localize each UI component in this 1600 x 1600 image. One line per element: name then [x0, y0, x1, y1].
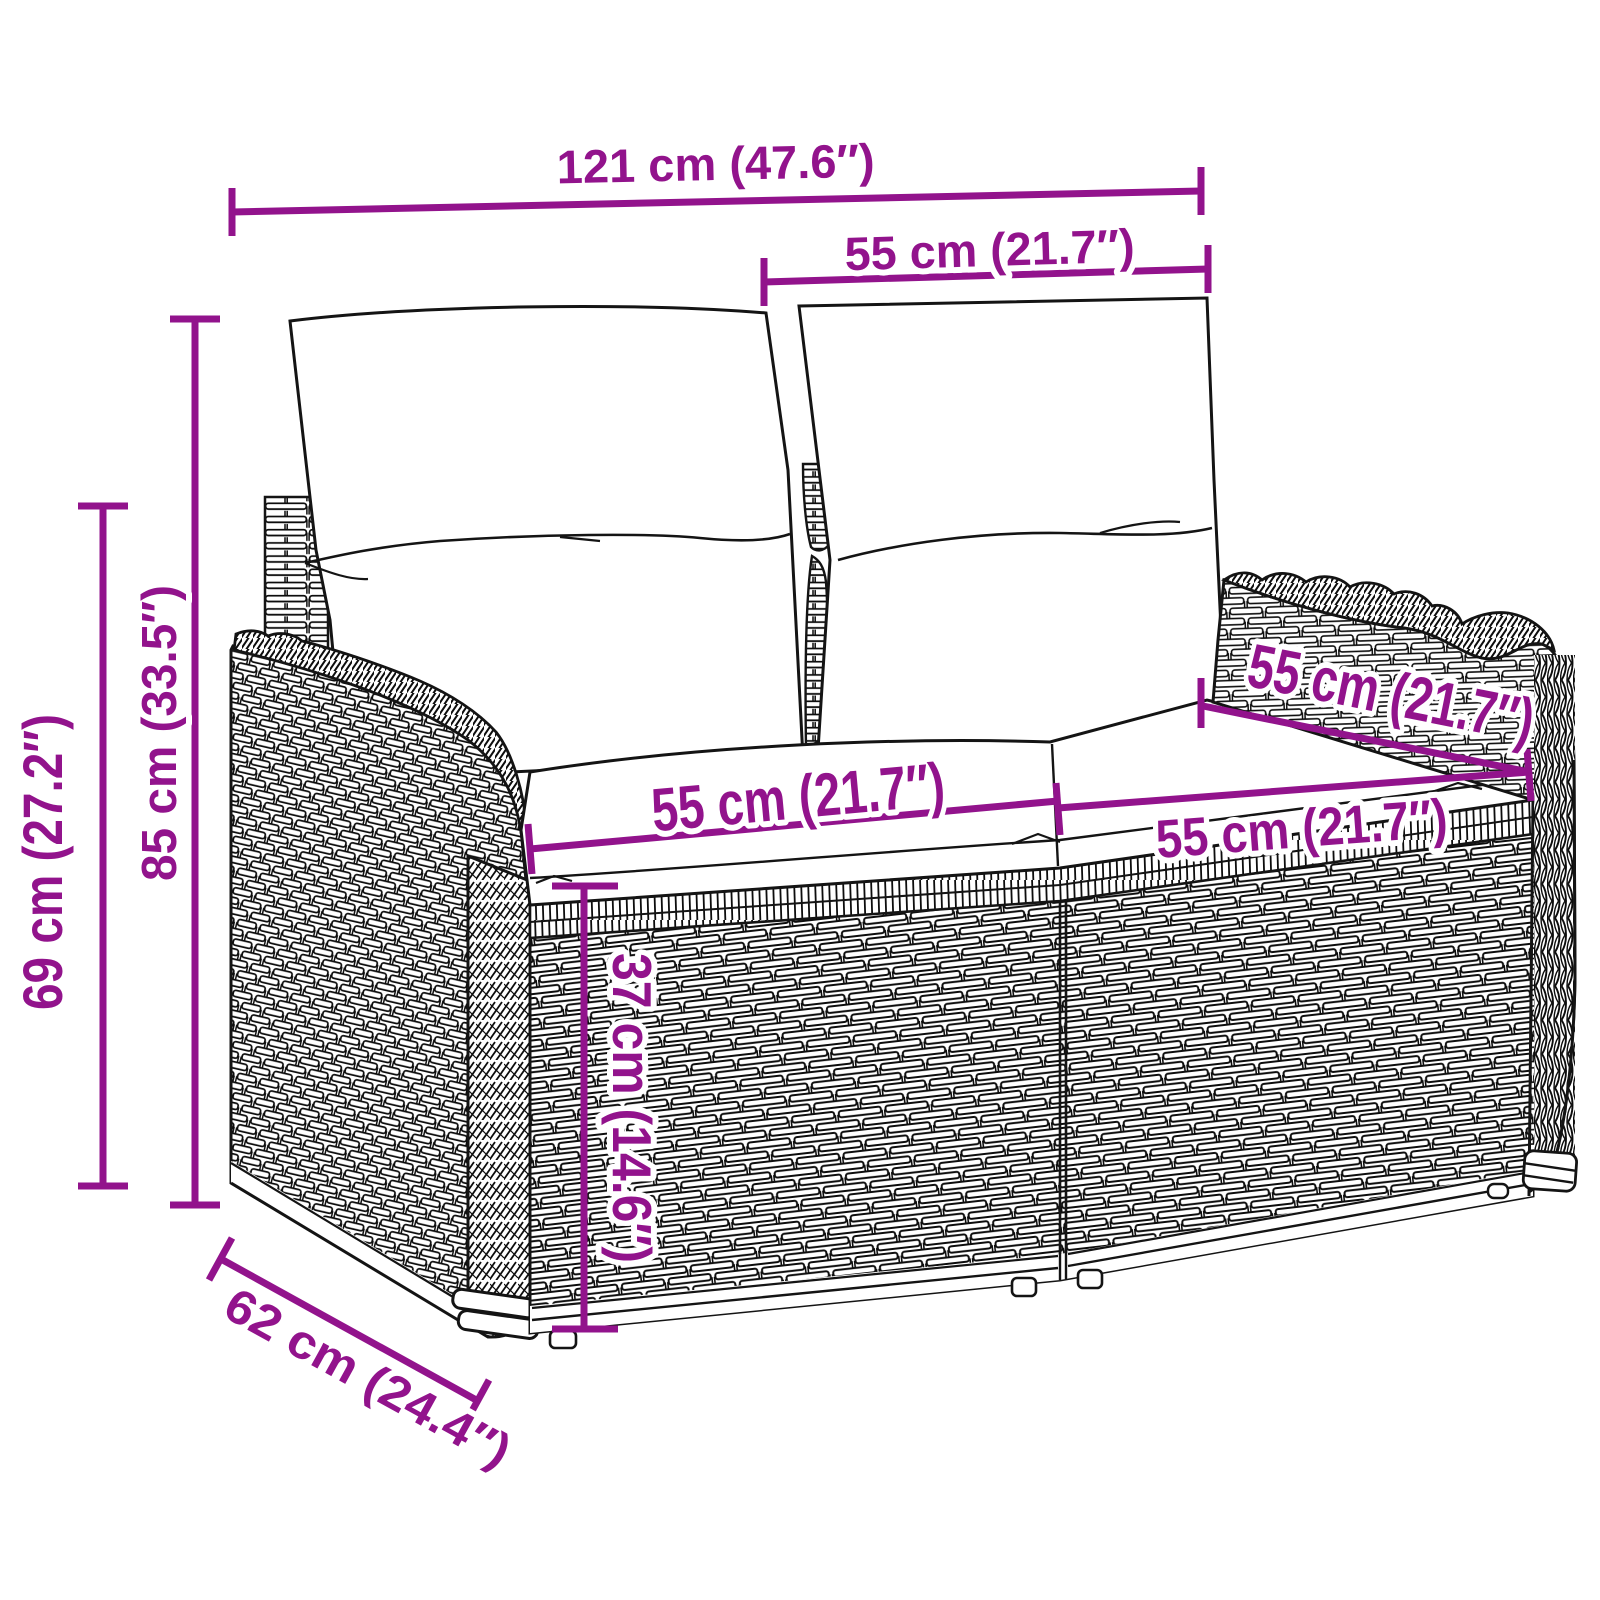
svg-text:69 cm (27.2″): 69 cm (27.2″) [11, 714, 74, 1010]
svg-text:55 cm (21.7″): 55 cm (21.7″) [844, 219, 1135, 281]
svg-text:85 cm (33.5″): 85 cm (33.5″) [133, 585, 187, 881]
svg-text:121 cm (47.6″): 121 cm (47.6″) [556, 134, 875, 194]
svg-text:37 cm (14.6″): 37 cm (14.6″) [601, 953, 663, 1263]
